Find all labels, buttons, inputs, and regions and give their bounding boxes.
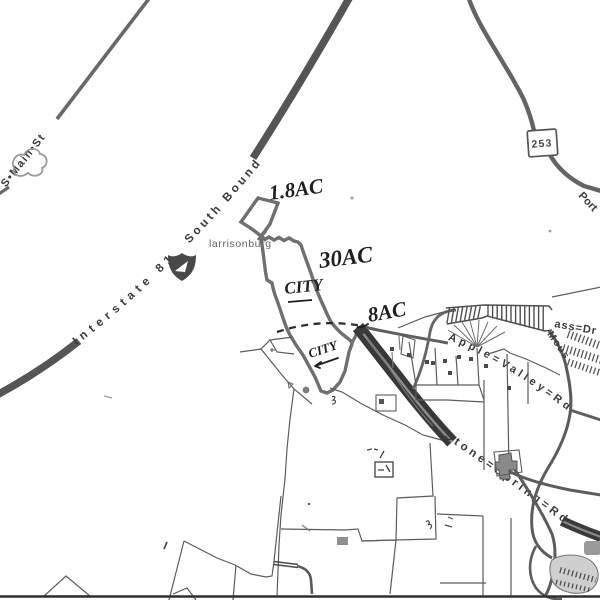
svg-text:253: 253 (531, 137, 553, 150)
